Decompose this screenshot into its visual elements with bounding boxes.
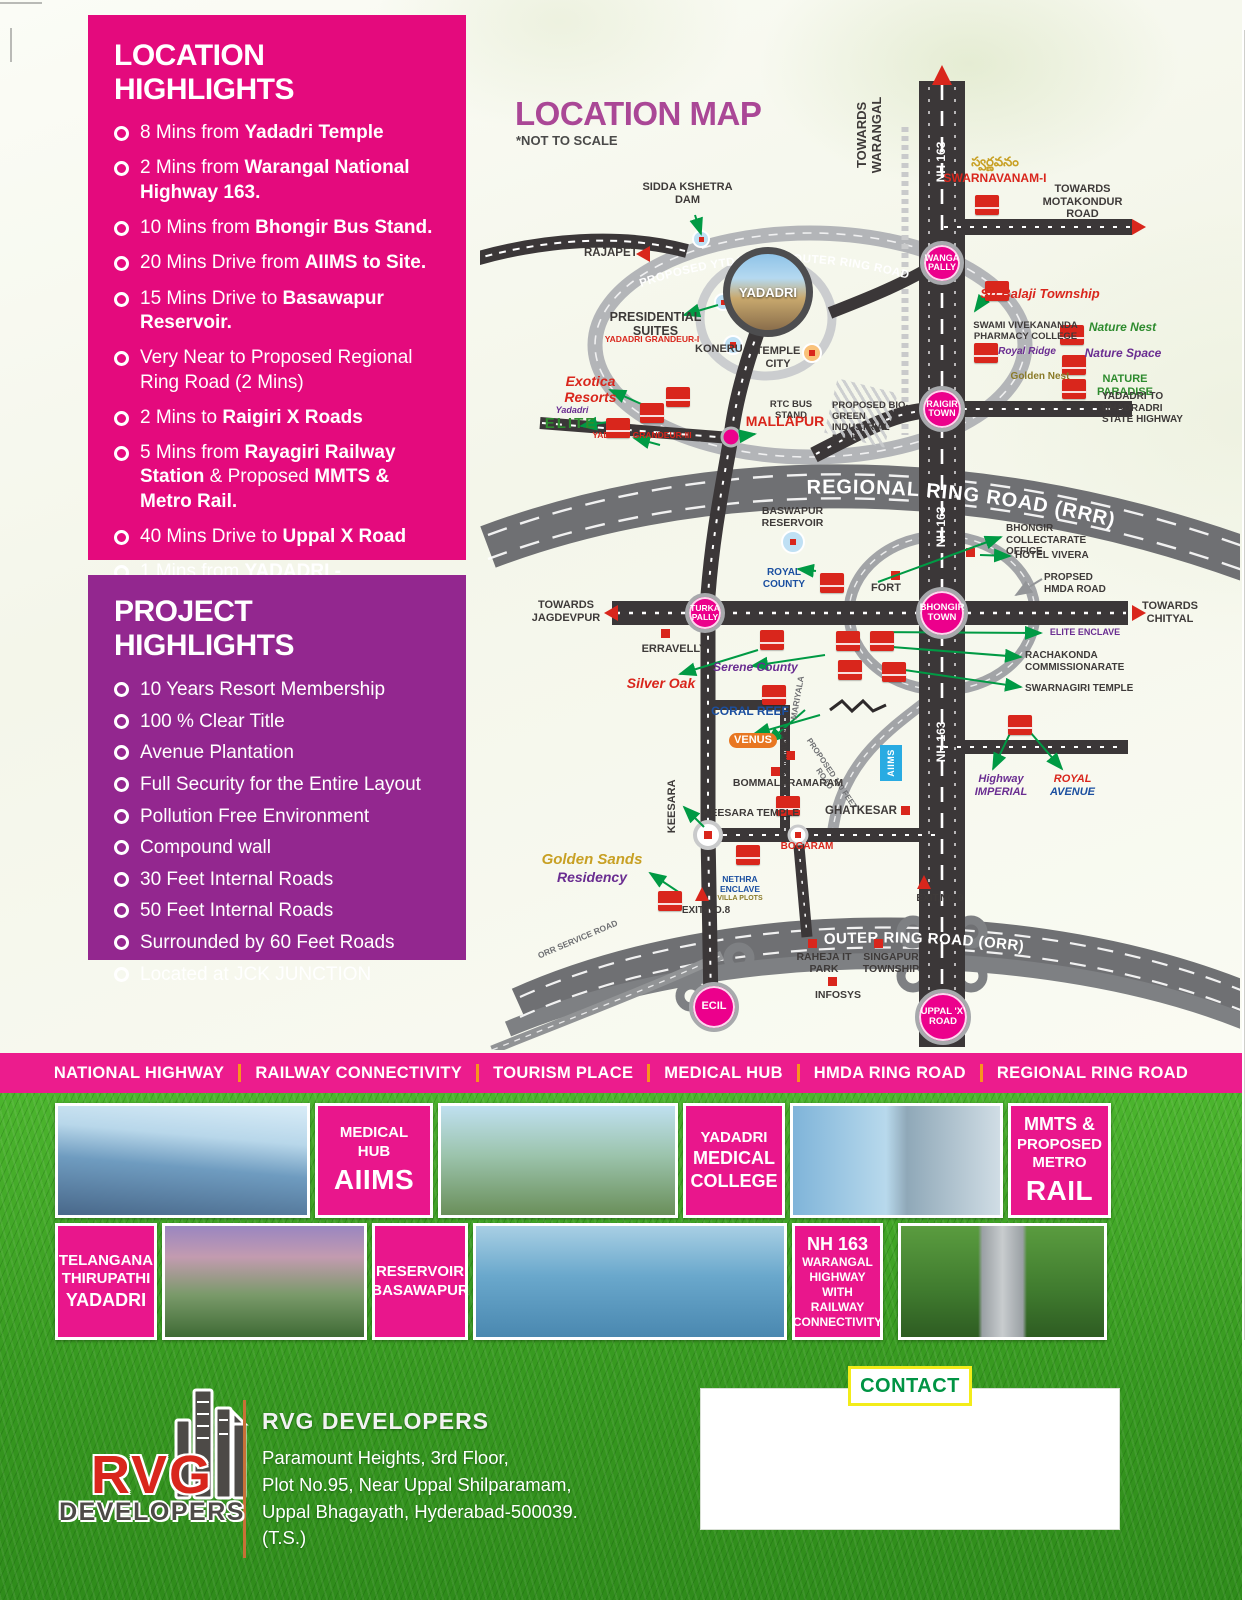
- highlight-item: Pollution Free Environment: [114, 804, 440, 830]
- project-highlights-title: PROJECT HIGHLIGHTS: [114, 595, 440, 663]
- bullet-icon: [114, 682, 129, 697]
- bullet-icon: [114, 745, 129, 760]
- royal-avenue-word1: ROYAL: [1054, 773, 1092, 785]
- rvg-logo-marker: [975, 195, 999, 215]
- junction-ecil: ECIL: [689, 982, 739, 1032]
- map-label-bommalaramaram: BOMMALARAMARAM: [732, 777, 844, 789]
- item-text: 15 Mins Drive to Basawapur Reservoir.: [140, 287, 440, 336]
- highlight-item: 40 Mins Drive to Uppal X Road: [114, 525, 440, 549]
- map-label-royal-ridge: Royal Ridge: [992, 346, 1062, 358]
- crop-mark: [0, 2, 42, 4]
- caption-line: YADADRI: [66, 1289, 146, 1312]
- map-label-nature-nest: Nature Nest: [1080, 321, 1165, 335]
- highlight-item: Very Near to Proposed Regional Ring Road…: [114, 346, 440, 395]
- highlight-item: Avenue Plantation: [114, 740, 440, 766]
- map-label-elite-enclave: ELITE ENCLAVE: [1045, 627, 1125, 637]
- rvg-logo-developers: DEVELOPERS: [50, 1498, 254, 1527]
- basawapur-reservoir-photo: [473, 1223, 787, 1340]
- item-text: 50 Feet Internal Roads: [140, 898, 333, 924]
- map-label-hotel-vivera: HOTEL VIVERA: [1015, 550, 1105, 562]
- caption-reservoir-basawapur: RESERVOIR BASAWAPUR: [372, 1223, 468, 1340]
- item-text: 30 Feet Internal Roads: [140, 867, 333, 893]
- map-label-silver-oak: Silver Oak: [620, 675, 702, 691]
- map-label-bogaram: BOGARAM: [776, 841, 838, 853]
- caption-line: THIRUPATHI: [62, 1270, 151, 1289]
- rvg-logo-marker: [762, 685, 786, 705]
- map-label-coral-reef: CORAL REEF: [710, 705, 790, 719]
- caption-line: AIIMS: [334, 1162, 414, 1197]
- crop-mark: [1244, 30, 1245, 1340]
- item-text: 10 Mins from Bhongir Bus Stand.: [140, 216, 432, 240]
- map-label-towards-jagdevpur: TOWARDS JAGDEVPUR: [522, 599, 610, 624]
- caption-line: HIGHWAY WITH: [795, 1270, 880, 1300]
- highlight-item: 2 Mins from Warangal National Highway 16…: [114, 156, 440, 205]
- band-item: REGIONAL RING ROAD: [997, 1064, 1188, 1083]
- map-label-serene-county: Serene County: [708, 661, 803, 675]
- map-label-rajapet: RAJAPET: [584, 247, 636, 260]
- item-text: Pollution Free Environment: [140, 804, 369, 830]
- map-label-exit-9: EXIT.NO.9: [904, 893, 976, 905]
- bullet-icon: [114, 126, 129, 141]
- bullet-icon: [114, 446, 129, 461]
- band-item: NATIONAL HIGHWAY: [54, 1064, 224, 1083]
- rvg-logo-text: RVG: [62, 1448, 242, 1502]
- bullet-icon: [114, 777, 129, 792]
- item-text: Surrounded by 60 Feet Roads: [140, 930, 395, 956]
- caption-line: MEDICAL: [693, 1147, 775, 1170]
- highlight-item: Located at JCK JUNCTION: [114, 962, 440, 988]
- bullet-icon: [114, 292, 129, 307]
- bullet-icon: [114, 935, 129, 950]
- map-label-golden-nest: Golden Nest: [1005, 371, 1075, 383]
- item-text: Avenue Plantation: [140, 740, 294, 766]
- map-label-yadadri-grandeur-1: YADADRI GRANDEUR-I: [602, 335, 702, 345]
- location-highlights-title: LOCATION HIGHLIGHTS: [114, 39, 440, 107]
- caption-line: BASAWAPUR: [371, 1282, 469, 1301]
- caption-line: RESERVOIR: [376, 1263, 464, 1282]
- footer-divider: [243, 1400, 246, 1558]
- caption-line: PROPOSED: [1017, 1136, 1102, 1155]
- highway-aerial-photo: [898, 1223, 1107, 1340]
- map-label-sidda-kshetra: SIDDA KSHETRA DAM: [640, 181, 735, 206]
- bullet-icon: [114, 903, 129, 918]
- map-label-mallapur: MALLAPUR: [740, 413, 830, 429]
- map-label-singapur-township: SINGAPUR TOWNSHIP: [850, 951, 932, 975]
- crop-mark: [10, 28, 12, 62]
- footer-address-block: RVG DEVELOPERS Paramount Heights, 3rd Fl…: [262, 1408, 592, 1552]
- highlight-item: Full Security for the Entire Layout: [114, 772, 440, 798]
- highlight-item: 10 Mins from Bhongir Bus Stand.: [114, 216, 440, 240]
- band-item: MEDICAL HUB: [664, 1064, 783, 1083]
- royal-avenue-word2: AVENUE: [1050, 786, 1095, 798]
- road-label-nh163: NH 163: [935, 497, 949, 557]
- project-highlights-panel: PROJECT HIGHLIGHTS 10 Years Resort Membe…: [88, 575, 466, 960]
- aiims-marker: AIIMS: [880, 745, 902, 781]
- bullet-icon: [114, 161, 129, 176]
- map-label-venus: VENUS: [718, 733, 788, 748]
- caption-line: CONNECTIVITY: [793, 1315, 882, 1330]
- college-gate-photo: [438, 1103, 678, 1218]
- bullet-icon: [114, 256, 129, 271]
- map-label-proposed-biogreen: PROPOSED BIO-GREEN INDUSTRIAL PARK: [832, 401, 917, 445]
- caption-mmts-metro-rail: MMTS & PROPOSED METRO RAIL: [1008, 1103, 1111, 1218]
- rvg-logo-marker: [838, 660, 862, 680]
- rvg-logo-marker: [820, 573, 844, 593]
- caption-line: RAIL: [1026, 1173, 1093, 1208]
- map-label-elite-brand: Yadadri: [542, 405, 602, 415]
- highlight-item: 20 Mins Drive from AIIMS to Site.: [114, 251, 440, 275]
- map-label-royal-county: ROYAL COUNTY: [748, 567, 820, 590]
- highlight-item: Surrounded by 60 Feet Roads: [114, 930, 440, 956]
- contact-details-box: [700, 1388, 1120, 1530]
- caption-medical-hub-aiims: MEDICAL HUB AIIMS: [315, 1103, 433, 1218]
- band-separator: [797, 1064, 800, 1082]
- map-label-yadadri-grandeur-3: YADADRI GRANDEUR-III: [592, 431, 692, 441]
- map-label-propsed-hmda: PROPSED HMDA ROAD: [1044, 572, 1124, 595]
- caption-line: NH 163: [807, 1233, 868, 1256]
- company-name: RVG DEVELOPERS: [262, 1408, 592, 1435]
- map-label-infosys: INFOSYS: [802, 989, 874, 1001]
- road-label-chikatimamidi: CHIKATIMAMIDI: [780, 717, 790, 803]
- highlight-item: 15 Mins Drive to Basawapur Reservoir.: [114, 287, 440, 336]
- bullet-icon: [114, 530, 129, 545]
- band-item: TOURISM PLACE: [493, 1064, 633, 1083]
- caption-line: TELANGANA: [59, 1252, 153, 1271]
- caption-line: WARANGAL: [802, 1255, 873, 1270]
- highlight-item: Compound wall: [114, 835, 440, 861]
- bullet-icon: [114, 967, 129, 982]
- item-text: 100 % Clear Title: [140, 709, 285, 735]
- map-label-towards-motakondur: TOWARDS MOTAKONDUR ROAD: [1025, 183, 1140, 221]
- map-label-highway-imperial: Highway IMPERIAL: [967, 773, 1035, 798]
- item-text: Located at JCK JUNCTION: [140, 962, 371, 988]
- caption-line: COLLEGE: [690, 1170, 777, 1193]
- item-text: 20 Mins Drive from AIIMS to Site.: [140, 251, 426, 275]
- rvg-logo-marker: [1008, 715, 1032, 735]
- caption-nh163-highway: NH 163 WARANGAL HIGHWAY WITH RAILWAY CON…: [792, 1223, 883, 1340]
- rvg-logo-marker: [666, 387, 690, 407]
- highlight-item: 8 Mins from Yadadri Temple: [114, 121, 440, 145]
- map-label-temple-city: TEMPLE CITY: [752, 345, 804, 370]
- location-highlights-panel: LOCATION HIGHLIGHTS 8 Mins from Yadadri …: [88, 15, 466, 560]
- bullet-icon: [114, 872, 129, 887]
- highlight-item: 50 Feet Internal Roads: [114, 898, 440, 924]
- mmts-metro-trains-photo: [790, 1103, 1003, 1218]
- item-text: Very Near to Proposed Regional Ring Road…: [140, 346, 440, 395]
- map-label-erravelly: ERRAVELLY: [638, 643, 710, 656]
- caption-line: MMTS &: [1024, 1113, 1095, 1136]
- map-label-swami-vivekananda: SWAMI VIVEKANANDA PHARMACY COLLEGE: [968, 321, 1083, 343]
- bullet-icon: [114, 809, 129, 824]
- map-label-exit-8: EXIT-NO.8: [670, 905, 742, 917]
- bullet-icon: [114, 840, 129, 855]
- map-label-towards-warangal: TOWARDS WARANGAL: [855, 70, 885, 200]
- junction-raigir-town: RAIGIR TOWN: [919, 386, 965, 432]
- address-line: Plot No.95, Near Uppal Shilparamam,: [262, 1472, 592, 1499]
- location-map: LOCATION MAP *NOT TO SCALE: [480, 55, 1240, 1050]
- rvg-logo-marker: [760, 630, 784, 650]
- map-label-yadadri-bhadradri-hwy: YADADRI TO BHADRADRI STATE HIGHWAY: [1102, 391, 1194, 426]
- band-item: HMDA RING ROAD: [814, 1064, 966, 1083]
- rvg-logo-marker: [870, 631, 894, 651]
- caption-yadadri-medical-college: YADADRI MEDICAL COLLEGE: [683, 1103, 785, 1218]
- caption-line: HUB: [358, 1143, 391, 1162]
- rvg-logo-marker: [736, 845, 760, 865]
- aiims-label: AIIMS: [886, 749, 896, 777]
- brochure-page: LOCATION HIGHLIGHTS 8 Mins from Yadadri …: [0, 0, 1251, 1600]
- venus-logo: VENUS: [729, 733, 777, 748]
- caption-telangana-thirupathi-yadadri: TELANGANA THIRUPATHI YADADRI: [55, 1223, 157, 1340]
- map-label-rachakonda: RACHAKONDA COMMISSIONARATE: [1025, 650, 1140, 673]
- item-text: Compound wall: [140, 835, 271, 861]
- item-text: 2 Mins to Raigiri X Roads: [140, 406, 363, 430]
- band-separator: [647, 1064, 650, 1082]
- bullet-icon: [114, 351, 129, 366]
- band-item: RAILWAY CONNECTIVITY: [255, 1064, 462, 1083]
- band-separator: [238, 1064, 241, 1082]
- yadadri-temple-circle: YADADRI: [723, 247, 813, 337]
- highlight-item: 5 Mins from Rayagiri Railway Station & P…: [114, 441, 440, 514]
- highlight-item: 10 Years Resort Membership: [114, 677, 440, 703]
- item-text: Full Security for the Entire Layout: [140, 772, 421, 798]
- address-line: Uppal Bhagayath, Hyderabad-500039. (T.S.…: [262, 1499, 592, 1553]
- highlight-item: 2 Mins to Raigiri X Roads: [114, 406, 440, 430]
- map-label-baswapur-reservoir: BASWAPUR RESERVOIR: [750, 505, 835, 529]
- yadadri-temple-photo: [162, 1223, 367, 1340]
- map-label-golden-sands-residency: Residency: [542, 869, 642, 885]
- caption-line: MEDICAL: [340, 1124, 408, 1143]
- contact-label: CONTACT: [848, 1366, 972, 1406]
- aiims-building-photo: [55, 1103, 310, 1218]
- map-label-nature-space: Nature Space: [1078, 347, 1168, 361]
- junction-uppal-x-road: UPPAL 'X' ROAD: [915, 989, 971, 1045]
- bullet-icon: [114, 411, 129, 426]
- junction-turka-pally: TURKA PALLY: [685, 593, 725, 633]
- item-text: 2 Mins from Warangal National Highway 16…: [140, 156, 440, 205]
- map-label-towards-chityal: TOWARDS CHITYAL: [1130, 600, 1210, 625]
- caption-line: RAILWAY: [811, 1300, 865, 1315]
- map-label-swarnagiri-temple: SWARNAGIRI TEMPLE: [1025, 683, 1140, 695]
- highlight-item: 100 % Clear Title: [114, 709, 440, 735]
- band-separator: [980, 1064, 983, 1082]
- map-label-exotica-resorts: Exotica Resorts: [538, 373, 643, 405]
- category-band: NATIONAL HIGHWAY RAILWAY CONNECTIVITY TO…: [0, 1053, 1242, 1093]
- map-label-royal-avenue: ROYAL AVENUE: [1035, 773, 1110, 798]
- map-label-ghatkesar: GHATKESAR: [820, 805, 902, 818]
- item-text: 5 Mins from Rayagiri Railway Station & P…: [140, 441, 440, 514]
- road-label-nh163: NH 163: [935, 712, 949, 772]
- item-text: 10 Years Resort Membership: [140, 677, 385, 703]
- map-label-swarnavanam-telugu: స్వర్ణవనం: [935, 155, 1055, 170]
- rvg-logo-marker: [882, 662, 906, 682]
- junction-wanga-pally: WANGA PALLY: [920, 241, 964, 285]
- address-line: Paramount Heights, 3rd Floor,: [262, 1445, 592, 1472]
- map-label-nethra-villa-plots: VILLA PLOTS: [712, 895, 768, 903]
- caption-line: METRO: [1032, 1154, 1086, 1173]
- bullet-icon: [114, 714, 129, 729]
- map-label-nethra-enclave: NETHRA ENCLAVE: [706, 875, 774, 895]
- map-label-koneru: KONERU: [695, 343, 740, 356]
- band-separator: [476, 1064, 479, 1082]
- map-label-fort: FORT: [865, 582, 907, 595]
- caption-line: YADADRI: [701, 1129, 768, 1148]
- item-text: 40 Mins Drive to Uppal X Road: [140, 525, 406, 549]
- junction-bhongir-town: BHONGIR TOWN: [916, 587, 968, 639]
- map-label-keesara: KEESARA: [666, 764, 679, 849]
- map-label-sri-balaji: Sri Balaji Township: [980, 287, 1100, 302]
- item-text: 8 Mins from Yadadri Temple: [140, 121, 384, 145]
- rvg-logo-marker: [640, 403, 664, 423]
- rvg-logo-marker: [836, 631, 860, 651]
- highlight-item: 30 Feet Internal Roads: [114, 867, 440, 893]
- bullet-icon: [114, 221, 129, 236]
- map-label-golden-sands: Golden Sands: [536, 851, 648, 868]
- map-label-keesara-temple: KEESARA TEMPLE: [702, 807, 800, 819]
